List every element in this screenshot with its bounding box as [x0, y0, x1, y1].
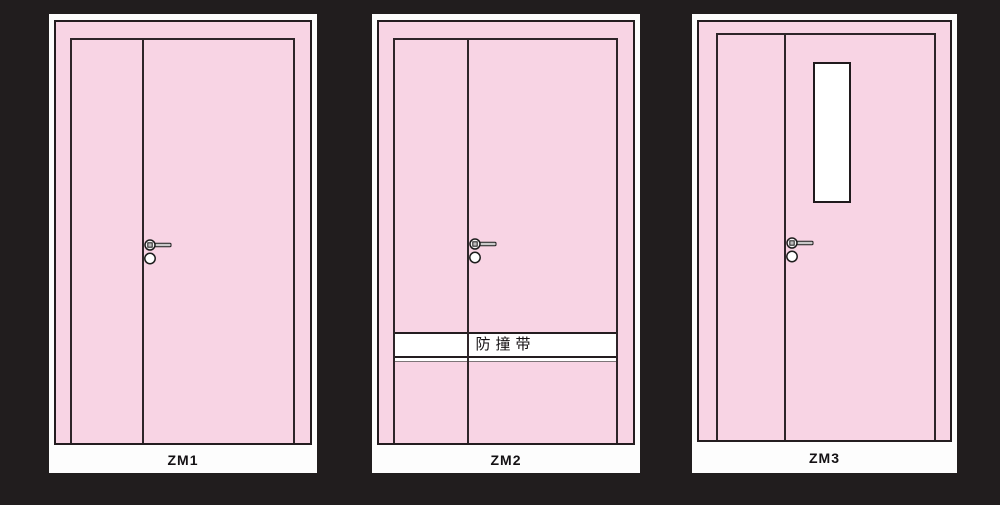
door-label-zm2: ZM2: [491, 452, 522, 468]
door-frame-zm2: 防撞带: [377, 20, 635, 445]
protection-band-label: 防撞带: [475, 334, 535, 356]
door-card-zm2: 防撞带 ZM2: [372, 14, 640, 473]
door-label-strip-zm1: ZM1: [49, 446, 317, 473]
door-handle-icon: [143, 238, 177, 268]
left-leaf-zm1: [72, 40, 142, 443]
protection-band-underline: [395, 361, 616, 362]
door-leaves-zm2: 防撞带: [393, 38, 618, 443]
door-frame-zm1: [54, 20, 312, 445]
door-label-zm1: ZM1: [168, 452, 199, 468]
door-leaves-zm1: [70, 38, 295, 443]
door-leaves-zm3: [716, 33, 936, 440]
door-card-zm3: ZM3: [692, 14, 957, 473]
left-leaf-zm2: [395, 40, 467, 443]
protection-band: 防撞带: [395, 332, 616, 358]
door-card-zm1: ZM1: [49, 14, 317, 473]
door-label-zm3: ZM3: [809, 450, 840, 466]
left-leaf-zm3: [718, 35, 784, 440]
door-frame-zm3: [697, 20, 952, 442]
door-label-strip-zm2: ZM2: [372, 446, 640, 473]
drawing-background: ZM1 防撞带 ZM2: [0, 0, 1000, 505]
door-label-strip-zm3: ZM3: [692, 443, 957, 473]
door-handle-icon: [785, 236, 819, 266]
door-handle-icon: [468, 237, 502, 267]
vision-panel-window: [813, 62, 851, 203]
